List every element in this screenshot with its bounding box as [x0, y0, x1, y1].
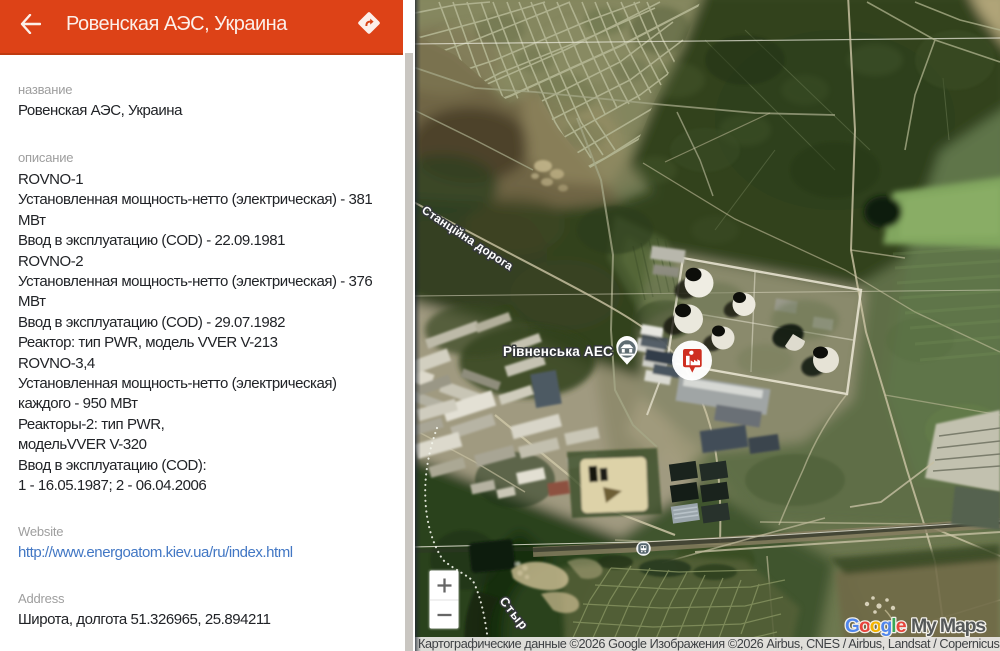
svg-text:My Maps: My Maps	[911, 615, 986, 637]
svg-text:Картографические данные ©2026: Картографические данные ©2026 Google Изо…	[418, 637, 1000, 651]
svg-text:Google: Google	[845, 615, 907, 637]
svg-text:Рівненська АЕС: Рівненська АЕС	[503, 344, 613, 359]
